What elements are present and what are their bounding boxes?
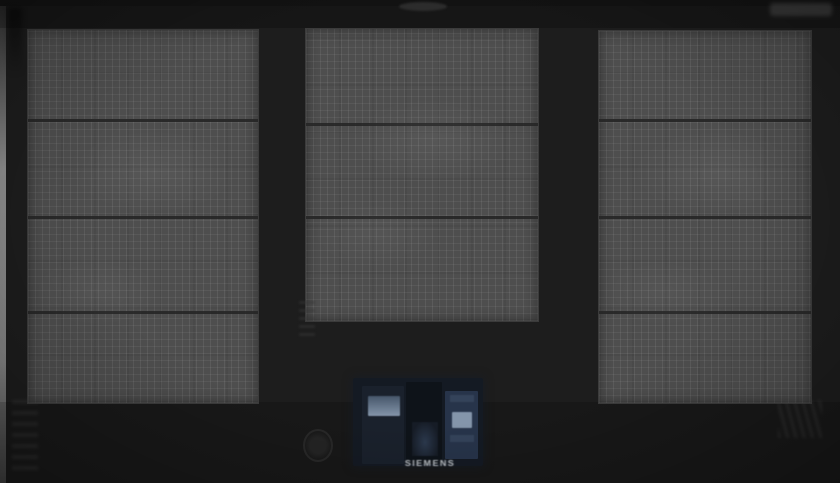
touch-control-panel[interactable] [353, 378, 483, 466]
display-row [450, 395, 474, 402]
bezel-top-band [0, 6, 840, 28]
left-zone-display[interactable] [362, 386, 404, 464]
power-sensor-key[interactable] [303, 429, 333, 462]
center-display-glow [412, 422, 438, 456]
left-display-screen [368, 396, 400, 416]
zone-divider [599, 311, 811, 314]
zone-divider [28, 119, 258, 122]
zone-divider [599, 216, 811, 219]
cook-zone-center [305, 28, 539, 322]
cooktop-photo: SIEMENS [0, 0, 840, 483]
siemens-logo-wordmark: SIEMENS [398, 458, 462, 468]
display-row [450, 435, 474, 442]
zone-divider [306, 216, 538, 219]
cook-zone-left [27, 29, 259, 404]
zone-divider [28, 311, 258, 314]
zone-divider [306, 123, 538, 126]
right-zone-display[interactable] [445, 391, 478, 459]
zone-divider [28, 216, 258, 219]
center-control-display[interactable] [406, 382, 442, 464]
cook-zone-right [598, 30, 812, 404]
zone-divider [599, 119, 811, 122]
right-display-value [452, 412, 472, 428]
